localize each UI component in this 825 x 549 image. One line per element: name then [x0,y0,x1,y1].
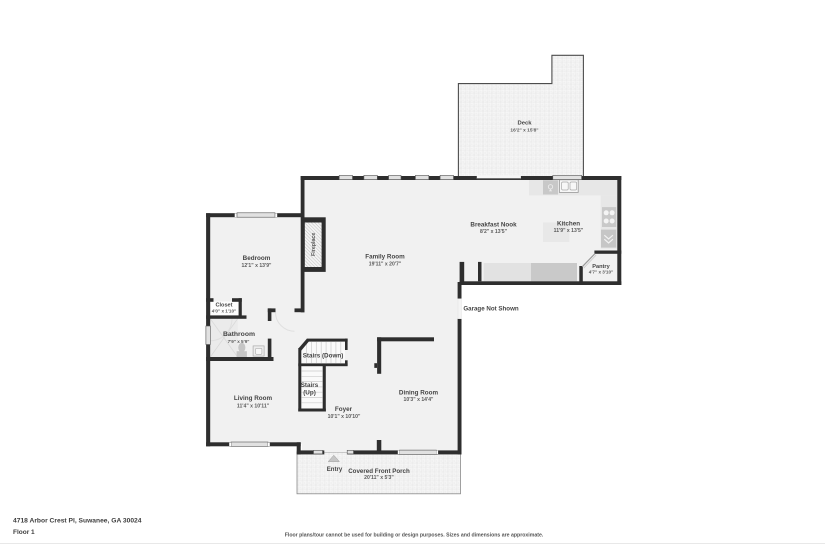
svg-text:7'9" x 5'9": 7'9" x 5'9" [228,339,250,344]
svg-text:20'11" x 5'3": 20'11" x 5'3" [364,475,394,481]
svg-text:11'9" x 13'5": 11'9" x 13'5" [554,228,584,234]
svg-text:Bathroom: Bathroom [223,331,255,338]
svg-text:19'11" x 20'7": 19'11" x 20'7" [369,261,402,267]
svg-text:10'1" x 10'10": 10'1" x 10'10" [328,414,361,420]
svg-text:Bedroom: Bedroom [243,255,271,262]
svg-text:Foyer: Foyer [335,406,353,413]
svg-text:4718 Arbor Crest Pl, Suwanee,: 4718 Arbor Crest Pl, Suwanee, GA 30024 [13,517,142,524]
svg-text:Garage Not Shown: Garage Not Shown [463,305,519,312]
svg-text:Deck: Deck [517,120,532,126]
svg-text:4'7" x 3'10": 4'7" x 3'10" [589,270,613,275]
svg-text:Floor plans/tour cannot be use: Floor plans/tour cannot be used for buil… [285,533,544,539]
svg-text:10'3" x 14'4": 10'3" x 14'4" [404,397,434,403]
svg-text:Breakfast Nook: Breakfast Nook [470,222,517,229]
svg-text:Dining Room: Dining Room [399,389,439,396]
svg-text:Kitchen: Kitchen [557,220,580,227]
svg-text:Living Room: Living Room [234,395,273,402]
svg-text:4'0" x 1'10": 4'0" x 1'10" [212,308,236,313]
svg-text:Stairs: Stairs [301,382,319,389]
svg-text:11'4" x 10'11": 11'4" x 10'11" [237,403,270,409]
svg-text:Stairs (Down): Stairs (Down) [303,352,344,359]
svg-text:12'1" x 13'9": 12'1" x 13'9" [242,263,272,269]
svg-text:Floor 1: Floor 1 [13,529,35,536]
svg-text:16'2" x 15'8": 16'2" x 15'8" [510,128,538,134]
svg-text:8'2" x 13'5": 8'2" x 13'5" [480,229,508,235]
svg-text:Family Room: Family Room [365,254,405,261]
svg-text:Entry: Entry [327,466,343,473]
svg-text:Fireplace: Fireplace [311,233,317,256]
svg-text:(Up): (Up) [303,390,316,397]
svg-text:Covered Front Porch: Covered Front Porch [348,468,410,475]
